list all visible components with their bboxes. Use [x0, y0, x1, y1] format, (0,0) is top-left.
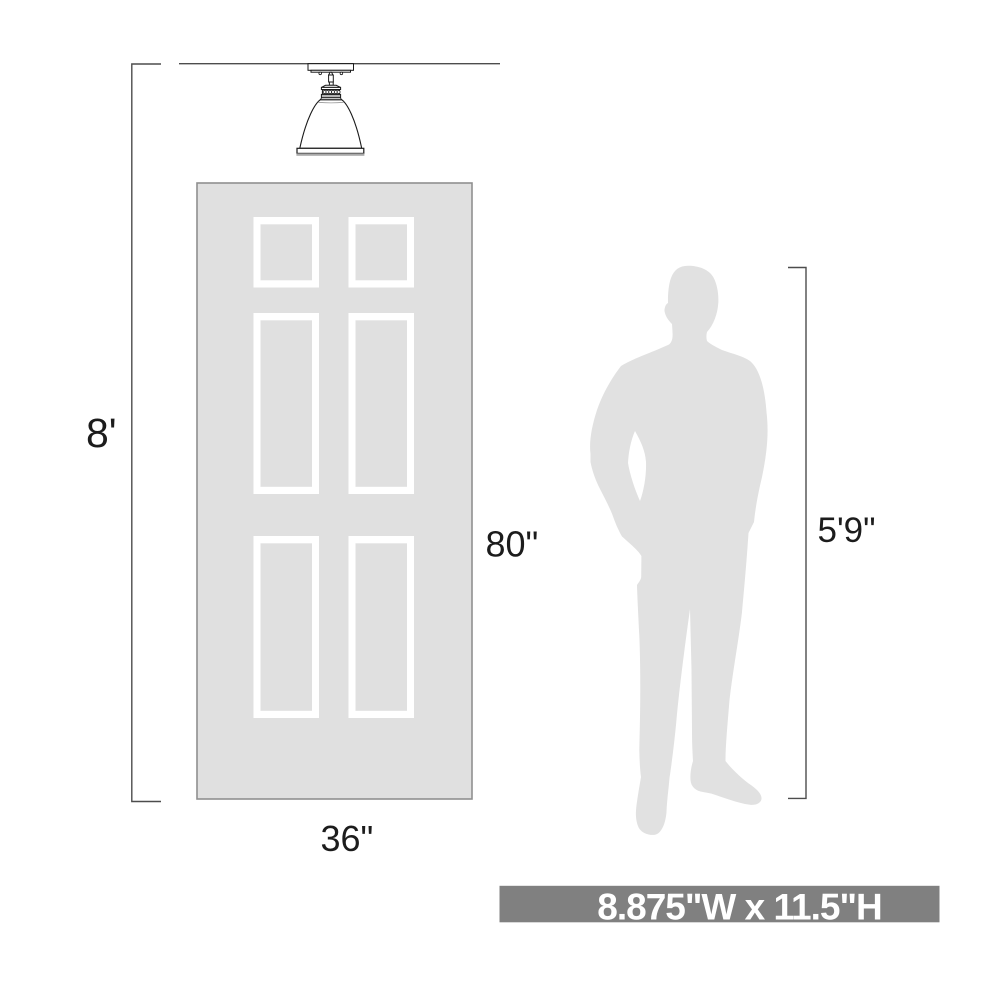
svg-text:5'9": 5'9" [818, 511, 876, 550]
svg-text:36": 36" [321, 818, 374, 859]
svg-text:8': 8' [86, 410, 117, 456]
svg-text:8.875"W x 11.5"H: 8.875"W x 11.5"H [597, 887, 881, 928]
svg-text:80": 80" [486, 524, 539, 565]
